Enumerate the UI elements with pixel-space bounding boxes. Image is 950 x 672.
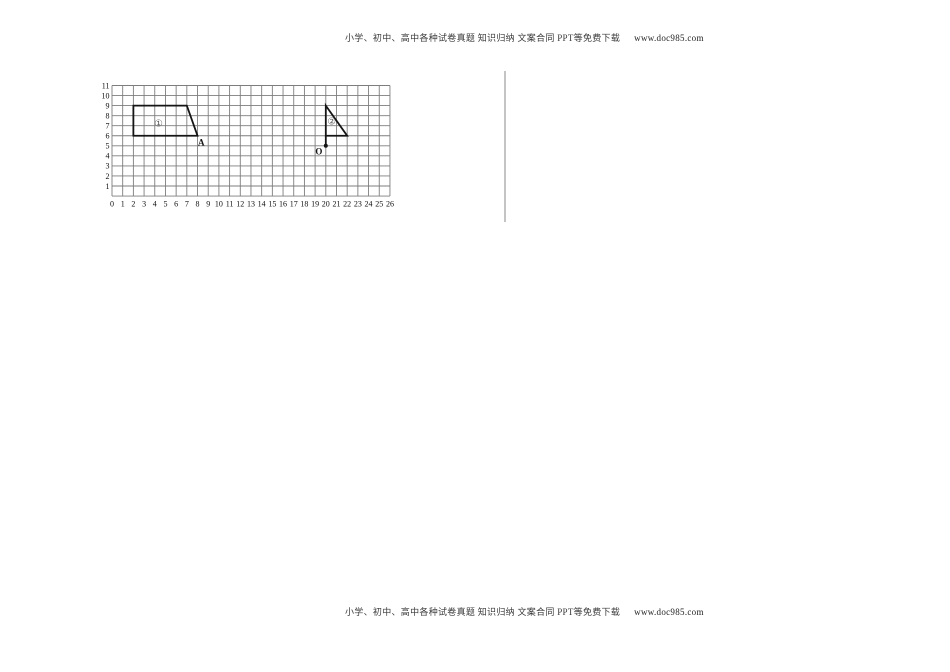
text-cursor-line: [504, 71, 506, 222]
x-axis-tick-label: 11: [226, 200, 234, 209]
x-axis-tick-label: 25: [375, 200, 383, 209]
shape-number-label: ②: [327, 116, 336, 127]
y-axis-tick-label: 6: [106, 132, 110, 141]
x-axis-tick-label: 18: [300, 200, 308, 209]
x-axis-tick-label: 14: [258, 200, 266, 209]
coordinate-grid-figure: 0123456789101112131415161718192021222324…: [95, 78, 407, 218]
y-axis-tick-label: 8: [106, 111, 110, 120]
header-site-link[interactable]: www.doc985.com: [634, 33, 704, 43]
x-axis-tick-label: 10: [215, 200, 223, 209]
x-axis-tick-label: 13: [247, 200, 255, 209]
x-axis-tick-label: 6: [174, 200, 178, 209]
y-axis-tick-label: 7: [106, 122, 110, 131]
x-axis-tick-label: 12: [236, 200, 244, 209]
y-axis-tick-label: 5: [106, 142, 110, 151]
y-axis-tick-label: 3: [106, 162, 110, 171]
x-axis-tick-label: 7: [185, 200, 189, 209]
x-axis-tick-label: 16: [279, 200, 287, 209]
y-axis-tick-label: 1: [106, 182, 110, 191]
y-axis-tick-label: 11: [102, 81, 110, 90]
point-dot-O: [324, 144, 328, 148]
header-text: 小学、初中、高中各种试卷真题 知识归纳 文案合同 PPT等免费下载: [345, 33, 620, 43]
y-axis-tick-label: 10: [102, 91, 110, 100]
x-axis-tick-label: 15: [268, 200, 276, 209]
x-axis-tick-label: 24: [365, 200, 373, 209]
document-page: 小学、初中、高中各种试卷真题 知识归纳 文案合同 PPT等免费下载www.doc…: [0, 0, 950, 672]
x-axis-tick-label: 21: [332, 200, 340, 209]
footer-text: 小学、初中、高中各种试卷真题 知识归纳 文案合同 PPT等免费下载: [345, 607, 620, 617]
x-axis-tick-label: 22: [343, 200, 351, 209]
footer-site-link[interactable]: www.doc985.com: [634, 607, 704, 617]
x-axis-tick-label: 23: [354, 200, 362, 209]
page-header: 小学、初中、高中各种试卷真题 知识归纳 文案合同 PPT等免费下载www.doc…: [345, 33, 704, 44]
x-axis-tick-label: 4: [153, 200, 157, 209]
y-axis-tick-label: 4: [106, 152, 110, 161]
shape-number-label: ①: [154, 118, 163, 129]
x-axis-tick-label: 1: [121, 200, 125, 209]
page-footer: 小学、初中、高中各种试卷真题 知识归纳 文案合同 PPT等免费下载www.doc…: [345, 607, 704, 618]
x-axis-tick-label: 3: [142, 200, 146, 209]
x-axis-tick-label: 0: [110, 200, 114, 209]
x-axis-tick-label: 19: [311, 200, 319, 209]
x-axis-tick-label: 5: [163, 200, 167, 209]
y-axis-tick-label: 9: [106, 101, 110, 110]
x-axis-tick-label: 8: [196, 200, 200, 209]
point-label-A: A: [198, 137, 205, 147]
x-axis-tick-label: 26: [386, 200, 394, 209]
x-axis-tick-label: 17: [290, 200, 298, 209]
x-axis-tick-label: 2: [131, 200, 135, 209]
y-axis-tick-label: 2: [106, 172, 110, 181]
point-label-O: O: [315, 147, 322, 157]
x-axis-tick-label: 20: [322, 200, 330, 209]
x-axis-tick-label: 9: [206, 200, 210, 209]
